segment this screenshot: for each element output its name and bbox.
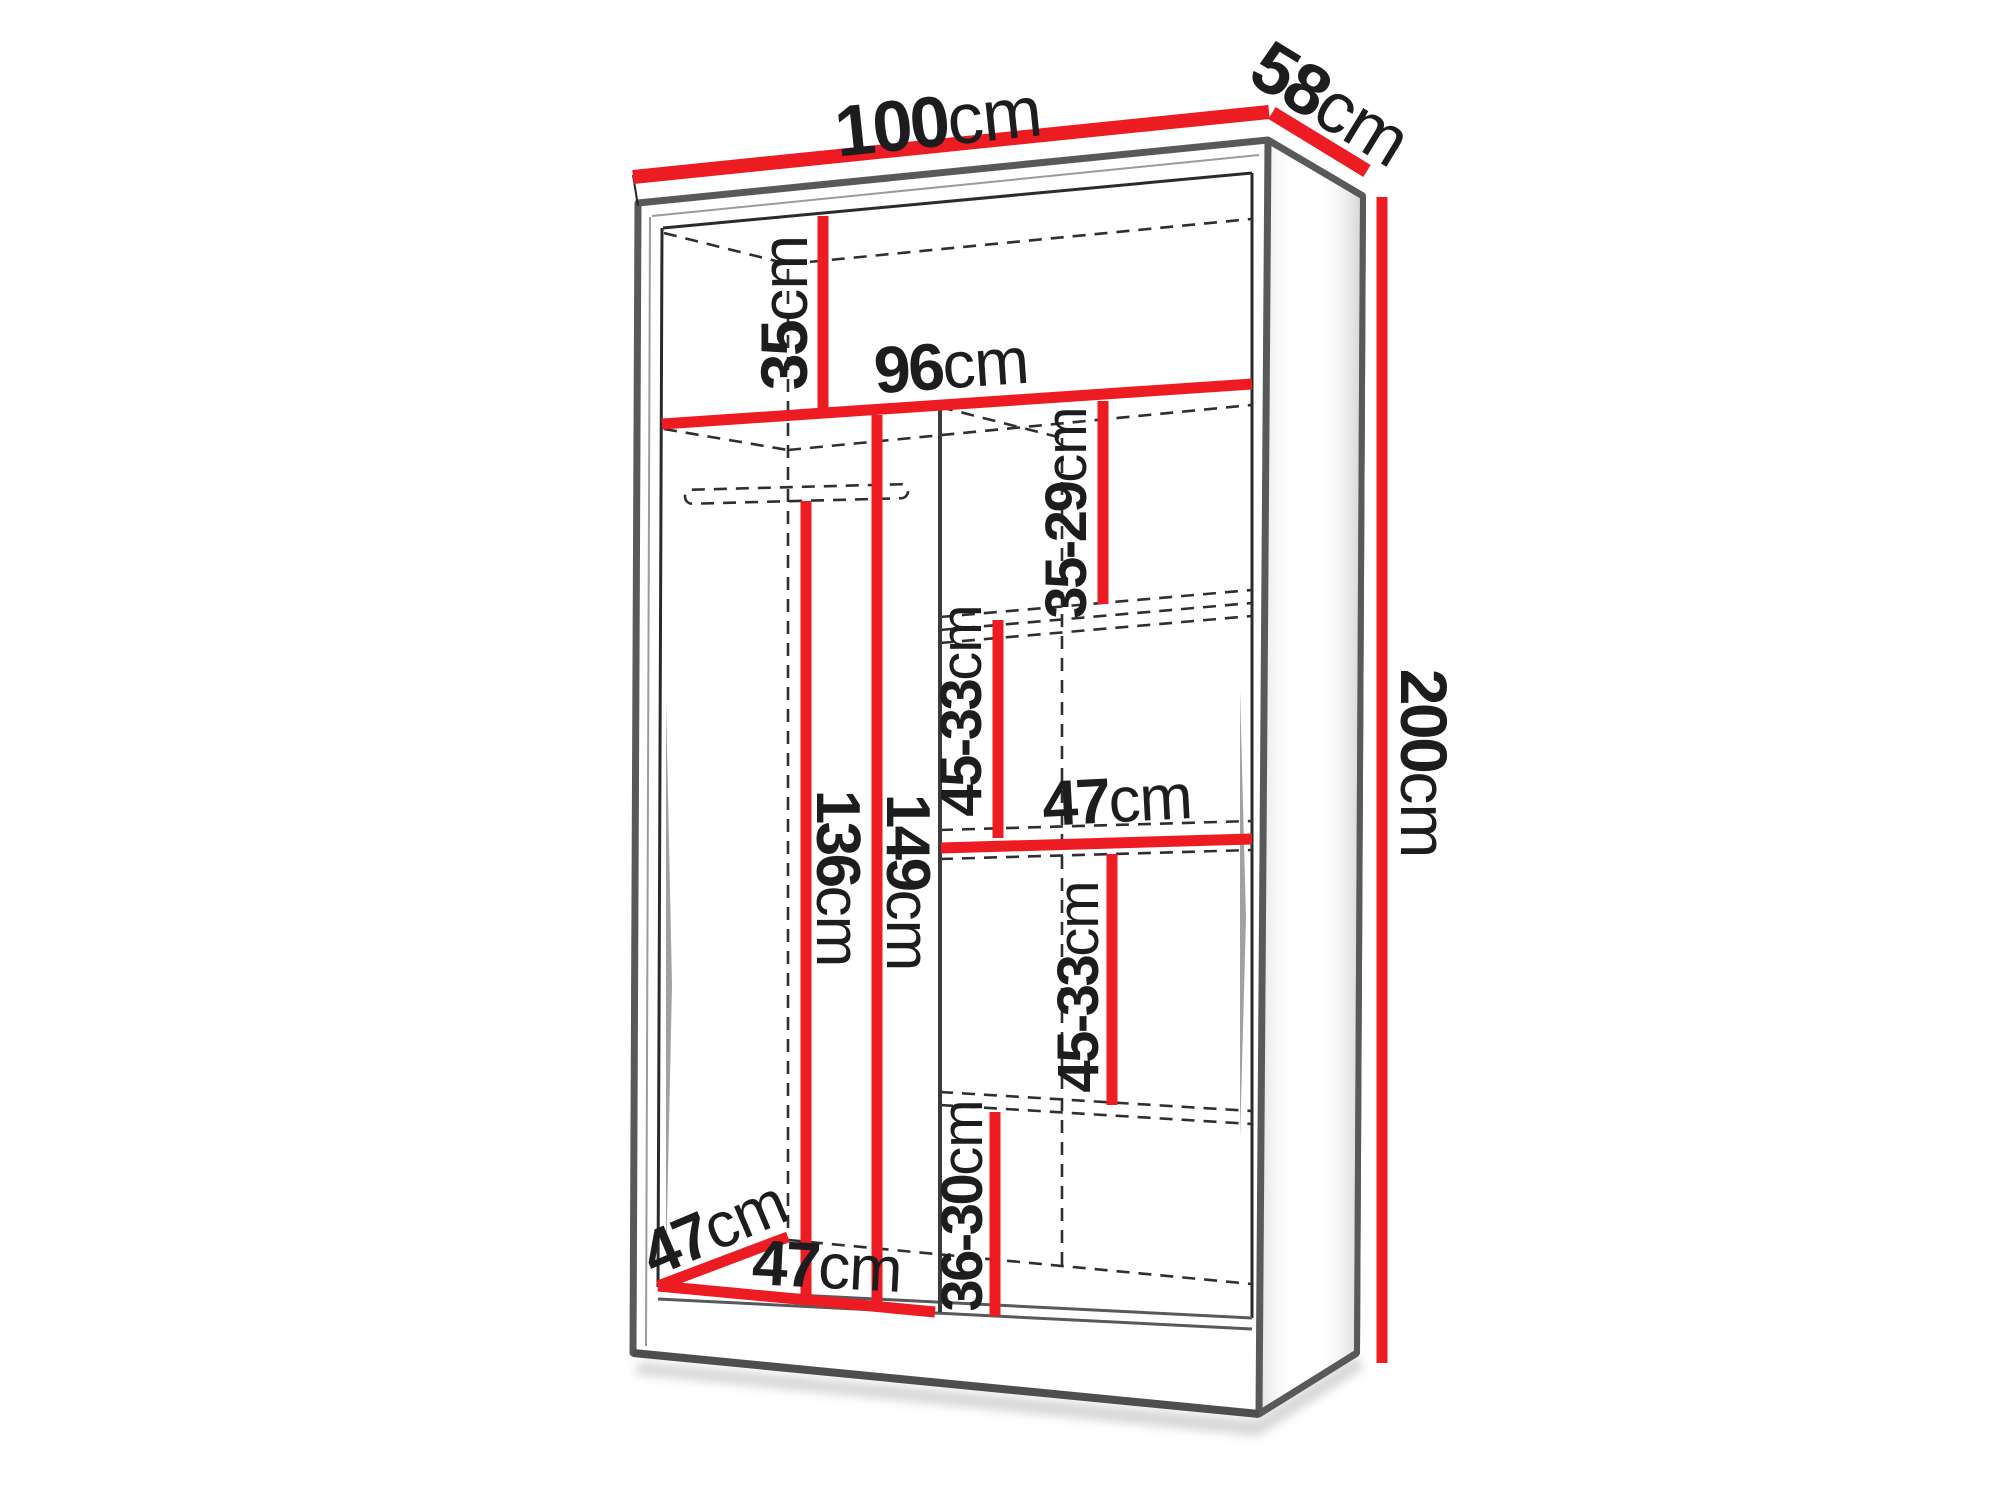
left-frame-line: [646, 217, 650, 1346]
wardrobe-dimension-diagram: 100cm 58cm 200cm 96cm 35cm 35-29cm 45-33…: [0, 0, 2000, 1500]
top-shelf-depth-edge: [664, 429, 788, 450]
interior-left-edge: [658, 228, 662, 1287]
dim-label-right-gap-top: 35-29cm: [1034, 407, 1099, 618]
dim-label-interior-width: 96cm: [871, 323, 1030, 408]
left-door-edge-highlight: [666, 700, 672, 1265]
diagram-canvas: 100cm 58cm 200cm 96cm 35cm 35-29cm 45-33…: [0, 0, 2000, 1500]
dim-line-right-shelf-width: [941, 839, 1252, 848]
dim-label-right-gap-upper: 45-33cm: [929, 605, 994, 816]
dim-label-right-gap-lower: 45-33cm: [1046, 881, 1111, 1092]
right-door-edge-highlight: [1240, 690, 1246, 1140]
dim-label-right-shelf-width: 47cm: [1040, 760, 1193, 840]
dim-label-height: 200cm: [1387, 669, 1461, 858]
dim-label-right-gap-bottom: 36-30cm: [930, 1100, 995, 1311]
interior-top-edge: [663, 173, 1252, 228]
wardrobe-side-panel: [1259, 140, 1363, 1414]
dim-label-width: 100cm: [831, 71, 1045, 172]
interior-back-top-edge: [788, 219, 1251, 264]
floor-shadow: [634, 1356, 1364, 1436]
dim-label-hanging-height: 149cm: [874, 794, 943, 971]
dim-label-rail-height: 136cm: [804, 790, 873, 967]
dim-label-top-compartment: 35cm: [747, 236, 821, 390]
